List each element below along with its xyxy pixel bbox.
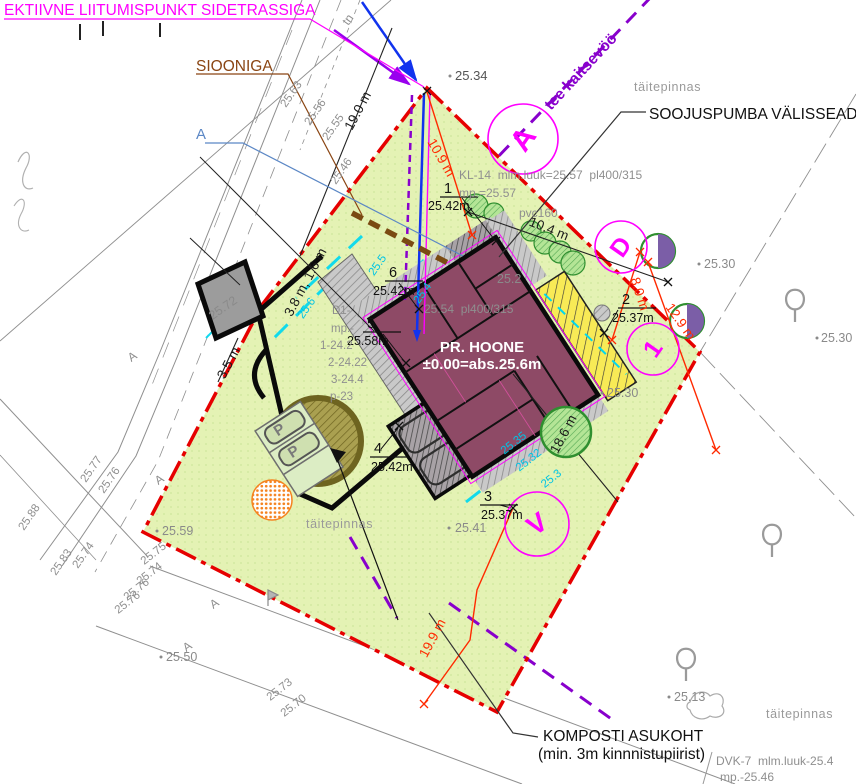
site-plan-canvas: P P xyxy=(0,0,856,784)
point-no: 3 xyxy=(484,489,492,505)
spot-elevation: 25.30 xyxy=(607,386,638,400)
spot-elevation: 25.41 xyxy=(455,521,486,535)
spot-elevation: 25.59 xyxy=(162,524,193,538)
utility-text: mp.=25.57 xyxy=(459,186,516,200)
point-elev: 25.58m xyxy=(347,334,389,348)
utility-text: p-23 xyxy=(330,391,353,403)
spot-elevation: 25.34 xyxy=(455,68,488,83)
utility-text: 2-24.22 xyxy=(328,357,367,369)
label-komposti-1: KOMPOSTI ASUKOHT xyxy=(543,728,704,745)
label-siooniga: SIOONIGA xyxy=(196,58,273,75)
surface-label: täitepinnas xyxy=(634,80,701,94)
spot-elevation: 25.30 xyxy=(704,257,735,271)
label-komposti-2: (min. 3m kinnnistupiirist) xyxy=(538,746,705,763)
small-hatched-well xyxy=(594,305,610,321)
point-elev: 25.42m xyxy=(371,460,413,474)
label-soojuspumba: SOOJUSPUMBA VÄLISSEAD xyxy=(649,106,856,123)
point-no: 6 xyxy=(389,265,397,281)
point-no: 1 xyxy=(444,181,452,197)
utility-text: D1- xyxy=(332,305,351,317)
surface-label: täitepinnas xyxy=(306,517,373,531)
point-no: 5 xyxy=(367,316,375,332)
utility-text: 3-24.4 xyxy=(331,374,364,386)
building-interior-spot: 25.2 xyxy=(497,272,521,286)
utility-text: 1-24.2 xyxy=(320,340,353,352)
building-zero-level: ±0.00=abs.25.6m xyxy=(423,356,542,373)
point-no: 4 xyxy=(374,441,382,457)
spot-elevation: 25.30 xyxy=(821,331,852,345)
utility-text: 25.54 pl400/315 xyxy=(424,302,514,316)
building-name: PR. HOONE xyxy=(440,339,524,356)
site-plan-drawing: P P xyxy=(0,0,856,784)
label-sidetrassiga: EKTIIVNE LIITUMISPUNKT SIDETRASSIGA xyxy=(4,2,316,19)
utility-text: mp.- xyxy=(331,323,354,335)
orange-marker-circle xyxy=(252,480,292,520)
point-no: 2 xyxy=(622,292,630,308)
utility-text: DVK-7 mlm.luuk-25.4 xyxy=(716,754,834,768)
point-elev: 25.37m xyxy=(481,508,523,522)
utility-text: mp.-25.46 xyxy=(720,770,774,784)
spot-elevation: 25.50 xyxy=(166,650,197,664)
spot-elevation: 25.13 xyxy=(674,690,705,704)
point-elev: 25.42m xyxy=(428,199,470,213)
utility-text: KL-14 mlm.luuk=25.57 pl400/315 xyxy=(459,168,642,182)
label-ref-a: A xyxy=(196,126,206,143)
utility-text: pvc160 xyxy=(519,206,558,220)
point-elev: 25.42m xyxy=(373,284,415,298)
surface-label: täitepinnas xyxy=(766,707,833,721)
point-elev: 25.37m xyxy=(612,311,654,325)
